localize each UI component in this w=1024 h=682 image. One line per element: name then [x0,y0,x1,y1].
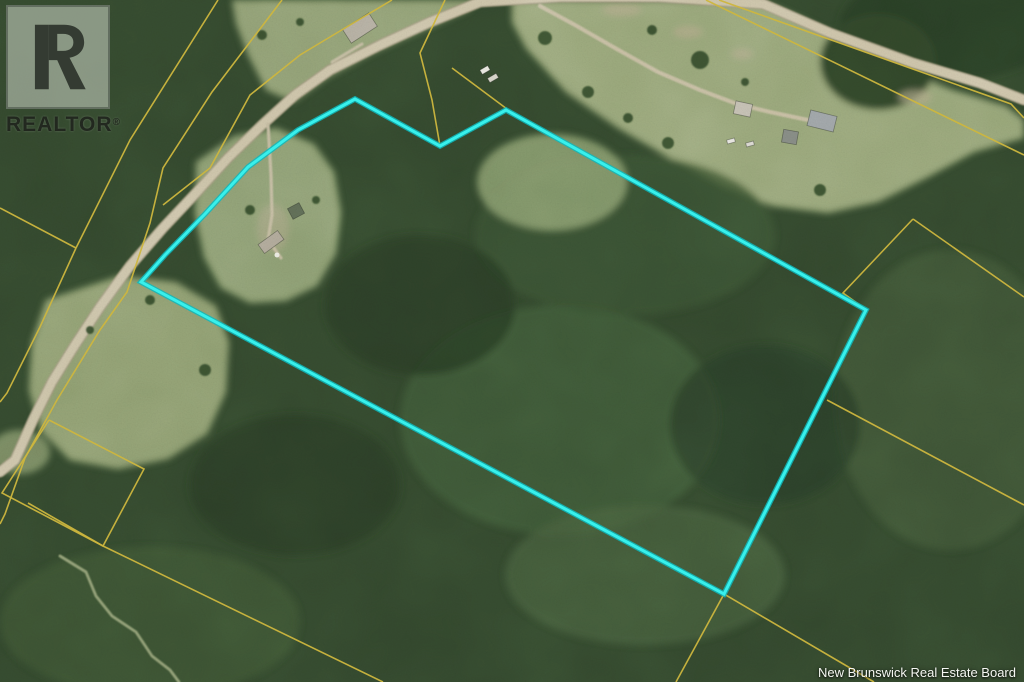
attribution-text: New Brunswick Real Estate Board [818,665,1016,680]
realtor-watermark: REALTOR® [6,5,128,137]
aerial-map-canvas [0,0,1024,682]
aerial-map-screenshot: REALTOR® New Brunswick Real Estate Board [0,0,1024,682]
realtor-r-icon [18,14,98,100]
realtor-logo-block [6,5,110,109]
realtor-logo-text: REALTOR® [6,111,128,137]
registered-trademark-icon: ® [113,117,120,128]
